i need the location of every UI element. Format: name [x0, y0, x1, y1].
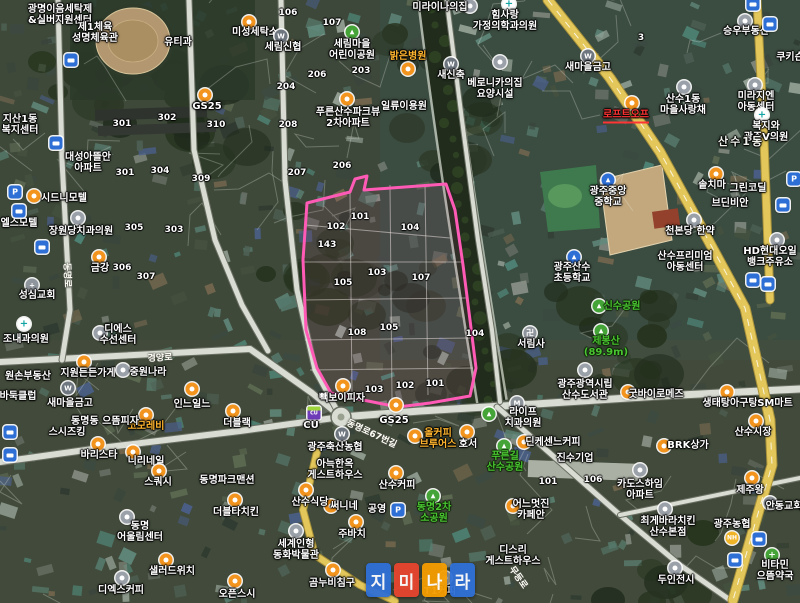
hospital-icon[interactable]: + [756, 109, 769, 122]
parking-icon[interactable]: P [788, 173, 800, 186]
store-icon[interactable] [153, 465, 166, 478]
poi-label[interactable]: 세림마을 [334, 40, 371, 50]
bus-stop-icon[interactable] [777, 199, 790, 212]
park-icon[interactable]: ▲ [483, 408, 496, 421]
bank-icon[interactable]: W [582, 50, 595, 63]
poi-label[interactable]: 복지와 [752, 122, 780, 132]
bank-icon[interactable]: W [275, 30, 288, 43]
poi-label[interactable]: 산수1동 [718, 137, 764, 147]
poi-label[interactable]: 동명2차 [417, 503, 452, 513]
poi-label[interactable]: 광주산수 [554, 263, 591, 273]
poi-label[interactable]: 동명동 으뜸피자 [71, 417, 139, 427]
poi-label[interactable]: CU [303, 421, 318, 431]
parcel-number: 104 [466, 329, 485, 339]
poi-label[interactable]: 바리스타 [81, 451, 118, 461]
place-icon[interactable] [494, 56, 507, 69]
poi-label[interactable]: 밝은병원 [390, 52, 427, 62]
parcel-number: 102 [396, 381, 415, 391]
poi-label[interactable]: 천본당 한약 [665, 227, 714, 237]
poi-label[interactable]: 브루어스 [420, 440, 457, 450]
poi-label[interactable]: 요양시설 [477, 90, 514, 100]
poi-label[interactable]: 시드니모텔 [41, 194, 87, 204]
poi-label[interactable]: 산수본점 [650, 528, 687, 538]
road-name-label: 동명로 [61, 262, 75, 287]
poi-label[interactable]: 비타민 [761, 561, 789, 571]
parcel-number: 207 [288, 168, 307, 178]
poi-label[interactable]: 새신축 [437, 71, 465, 81]
parcel-number: 102 [327, 222, 346, 232]
poi-label[interactable]: 광주중앙 [590, 187, 627, 197]
bus-stop-icon[interactable] [764, 18, 777, 31]
poi-label[interactable]: 디스리 [499, 546, 527, 556]
poi-label[interactable]: 샐러드위치 [149, 567, 195, 577]
poi-label[interactable]: 동화박물관 [273, 551, 319, 561]
place-icon[interactable] [688, 214, 701, 227]
bus-stop-icon[interactable] [762, 278, 775, 291]
poi-label[interactable]: 어린이공원 [329, 51, 375, 61]
road-name-label: 경양로 [147, 350, 172, 364]
parcel-number: 309 [192, 174, 211, 184]
poi-label[interactable]: 스쿼시 [144, 478, 172, 488]
poi-label[interactable]: GS25 [379, 416, 408, 426]
parcel-number: 3 [638, 33, 644, 43]
poi-label[interactable]: 제주왕 [736, 486, 764, 496]
watermark-tile: 라 [450, 563, 475, 597]
poi-label[interactable]: GS25 [192, 102, 221, 112]
watermark-tile: 미 [394, 563, 419, 597]
poi-label[interactable]: 미성세탁소 [232, 28, 278, 38]
poi-label[interactable]: 힘사랑 [491, 11, 519, 21]
bus-stop-icon[interactable] [747, 274, 760, 287]
parcel-number: 104 [401, 223, 420, 233]
poi-label[interactable]: 새마을금고 [47, 399, 93, 409]
temple-icon[interactable]: 卍 [524, 327, 537, 340]
place-icon[interactable] [669, 562, 682, 575]
poi-label[interactable]: 새마을금고 [565, 63, 611, 73]
store-icon[interactable] [390, 399, 403, 412]
bus-stop-icon[interactable] [4, 449, 17, 462]
poi-label[interactable]: 바둑클럽 [0, 392, 36, 402]
poi-label[interactable]: 로프트오프 [603, 111, 649, 124]
restaurant-icon[interactable] [721, 386, 734, 399]
store-icon[interactable] [300, 484, 313, 497]
poi-label[interactable]: 일류이용원 [381, 102, 427, 112]
poi-label[interactable]: 생태탕아구탕 [702, 399, 757, 409]
poi-label[interactable]: 제1체육 [78, 23, 113, 33]
poi-label[interactable]: 써니네 [330, 502, 358, 512]
place-icon[interactable] [659, 503, 672, 516]
poi-label[interactable]: 장원당치과의원 [49, 227, 113, 237]
poi-label[interactable]: 카도스하임 [617, 480, 663, 490]
place-icon[interactable] [771, 234, 784, 247]
poi-label[interactable]: 복지센터 [2, 126, 39, 136]
poi-label[interactable]: 지산1동 [3, 115, 38, 125]
bus-stop-icon[interactable] [729, 554, 742, 567]
store-icon[interactable] [28, 190, 41, 203]
poi-label[interactable]: 안동교회 [766, 502, 800, 512]
map-viewport[interactable]: 광명이음세탁제&실버지원센터지산1동복지센터제1체육성명체육관유티과미성세탁소W… [0, 0, 800, 603]
store-icon[interactable] [402, 63, 415, 76]
poi-label[interactable]: 조내과의원 [3, 335, 49, 345]
poi-label[interactable]: 디에스 [104, 325, 132, 335]
poi-label[interactable]: 더블랙 [223, 419, 251, 429]
map-label-layer: 광명이음세탁제&실버지원센터지산1동복지센터제1체육성명체육관유티과미성세탁소W… [0, 0, 800, 603]
poi-label[interactable]: 마을사랑채 [660, 106, 706, 116]
store-icon[interactable] [626, 97, 639, 110]
watermark-tile: 지 [366, 563, 391, 597]
place-icon[interactable] [116, 572, 129, 585]
parcel-number: 203 [352, 66, 371, 76]
poi-label[interactable]: 광주축산농협 [307, 443, 362, 453]
poi-label[interactable]: 그린코딜 [730, 184, 767, 194]
poi-label[interactable]: 원손부동산 [5, 372, 51, 382]
hospital-icon[interactable]: + [18, 318, 31, 331]
poi-label[interactable]: 산수시장 [735, 428, 772, 438]
poi-label[interactable]: 대성아뜰안 [65, 153, 111, 163]
parcel-number: 301 [116, 168, 135, 178]
poi-label[interactable]: 엘스모텔 [1, 219, 38, 229]
poi-label[interactable]: 카페안 [517, 511, 545, 521]
parcel-number: 101 [351, 212, 370, 222]
bank-icon[interactable]: NH [726, 532, 739, 545]
school-icon[interactable]: ▲ [602, 174, 615, 187]
store-icon[interactable] [92, 438, 105, 451]
parcel-number: 206 [333, 161, 352, 171]
poi-label[interactable]: 두인전시 [658, 576, 695, 586]
bus-stop-icon[interactable] [13, 205, 26, 218]
poi-label[interactable]: 어느멋진 [513, 500, 550, 510]
bank-icon[interactable]: W [445, 58, 458, 71]
poi-label[interactable]: 디엑스커피 [98, 586, 144, 596]
poi-label[interactable]: 굿바이로메즈 [628, 390, 683, 400]
watermark-tile: 나 [422, 563, 447, 597]
poi-label[interactable]: 서림사 [517, 340, 545, 350]
poi-label[interactable]: 브딘비안 [712, 199, 749, 209]
parcel-number: 307 [137, 272, 156, 282]
place-icon[interactable] [634, 464, 647, 477]
poi-label[interactable]: 빽보이피자 [319, 394, 365, 404]
parcel-number: 310 [207, 120, 226, 130]
parking-icon[interactable]: P [392, 504, 405, 517]
poi-label[interactable]: 쿠키슨 [776, 53, 800, 63]
poi-label[interactable]: 광주광역시립 [557, 380, 612, 390]
poi-label[interactable]: 성심교회 [19, 291, 56, 301]
parcel-number: 106 [279, 8, 298, 18]
store-icon[interactable] [186, 383, 199, 396]
parcel-number: 208 [279, 120, 298, 130]
poi-label[interactable]: 가정의학과의원 [473, 22, 537, 32]
parcel-number: 107 [323, 18, 342, 28]
restaurant-icon[interactable] [229, 494, 242, 507]
parcel-number: 305 [125, 223, 144, 233]
poi-label[interactable]: 2차아파트 [326, 119, 370, 129]
place-icon[interactable] [117, 364, 130, 377]
bank-icon[interactable]: W [336, 428, 349, 441]
poi-label[interactable]: BRK상가 [667, 441, 708, 451]
poi-label[interactable]: 아동센터 [667, 263, 704, 273]
poi-label[interactable]: 아파트 [626, 491, 654, 501]
poi-label[interactable]: 치과의원 [505, 419, 542, 429]
parcel-number: 103 [368, 268, 387, 278]
parcel-number: 301 [113, 119, 132, 129]
poi-label[interactable]: 동명파크맨션 [199, 476, 254, 486]
poi-label[interactable]: 아늑한옥 [317, 460, 354, 470]
parking-icon[interactable]: P [9, 186, 22, 199]
store-icon[interactable] [229, 575, 242, 588]
parcel-number: 101 [426, 379, 445, 389]
store-icon[interactable] [461, 426, 474, 439]
poi-label[interactable]: 초등학교 [554, 274, 591, 284]
parcel-number: 306 [113, 263, 132, 273]
parcel-number: 304 [151, 166, 170, 176]
poi-label[interactable]: 산수식당 [292, 498, 329, 508]
road-name-label: 무등로 [507, 563, 532, 591]
poi-label[interactable]: 광주농협 [714, 520, 751, 530]
bus-stop-icon[interactable] [753, 533, 766, 546]
poi-label[interactable]: 지원든든가게 [60, 369, 115, 379]
parcel-number: 105 [380, 323, 399, 333]
parcel-number: 105 [334, 278, 353, 288]
poi-label[interactable]: 산수도서관 [562, 391, 608, 401]
poi-label[interactable]: 중원나라 [130, 368, 167, 378]
store-icon[interactable] [390, 467, 403, 480]
poi-label[interactable]: 뱅크주유소 [747, 258, 793, 268]
store-icon[interactable] [350, 516, 363, 529]
parcel-number: 143 [318, 240, 337, 250]
park-icon[interactable]: ▲ [346, 26, 359, 39]
poi-label[interactable]: 푸른산수파크뷰 [316, 108, 380, 118]
poi-label[interactable]: 최게바라치킨 [640, 517, 695, 527]
bus-stop-icon[interactable] [65, 54, 78, 67]
store-icon[interactable] [327, 564, 340, 577]
poi-label[interactable]: 스시즈킹 [49, 428, 86, 438]
restaurant-icon[interactable] [710, 168, 723, 181]
restaurant-icon[interactable] [93, 251, 106, 264]
poi-label[interactable]: 세계인형 [278, 540, 315, 550]
parcel-number: 103 [365, 385, 384, 395]
store-icon[interactable] [140, 409, 153, 422]
poi-label[interactable]: 중학교 [594, 198, 622, 208]
poi-label[interactable]: 곰누비침구 [309, 579, 355, 589]
poi-label[interactable]: 산수1동 [666, 95, 701, 105]
parcel-number: 204 [277, 82, 296, 92]
bus-stop-icon[interactable] [50, 137, 63, 150]
place-icon[interactable] [72, 212, 85, 225]
poi-label[interactable]: 산수커피 [379, 481, 416, 491]
poi-label[interactable]: 솥치마 [698, 181, 726, 191]
parcel-number: 303 [165, 225, 184, 235]
poi-label[interactable]: 아파트 [74, 164, 102, 174]
place-icon[interactable] [290, 525, 303, 538]
store-icon[interactable] [341, 93, 354, 106]
hospital-icon[interactable]: + [503, 0, 516, 11]
poi-label[interactable]: 수선센터 [100, 336, 137, 346]
poi-label[interactable]: 베로니카의집 [467, 79, 522, 89]
bus-stop-icon[interactable] [4, 426, 17, 439]
poi-label[interactable]: 미라지엔 [738, 92, 775, 102]
poi-label[interactable]: 주바치 [338, 530, 366, 540]
poi-label[interactable]: 진수기업 [557, 454, 594, 464]
poi-label[interactable]: 소공원 [420, 514, 448, 524]
parcel-number: 107 [412, 273, 431, 283]
convenience-store-icon[interactable]: CU [308, 407, 321, 420]
poi-label[interactable]: 동명 [131, 522, 149, 532]
store-icon[interactable] [227, 405, 240, 418]
poi-label[interactable]: 산수프리미엄 [657, 252, 712, 262]
parcel-number: 108 [348, 328, 367, 338]
poi-label[interactable]: 푸른길 [491, 452, 519, 462]
store-icon[interactable] [160, 554, 173, 567]
poi-label[interactable]: 인느일느 [174, 400, 211, 410]
poi-label[interactable]: 라이프 [509, 408, 537, 418]
poi-label[interactable]: 세림신협 [265, 43, 302, 53]
bank-icon[interactable]: W [62, 382, 75, 395]
poi-label[interactable]: 산수공원 [487, 463, 524, 473]
poi-label[interactable]: SM마트 [757, 399, 793, 409]
restaurant-icon[interactable] [746, 472, 759, 485]
store-icon[interactable] [199, 89, 212, 102]
poi-label[interactable]: (89.9m) [584, 348, 628, 358]
place-icon[interactable] [678, 81, 691, 94]
poi-label[interactable]: 승우부동산 [723, 27, 769, 37]
poi-label[interactable]: 으뜸약국 [757, 572, 794, 582]
place-icon[interactable] [749, 79, 762, 92]
park-icon[interactable]: ▲ [427, 490, 440, 503]
poi-label[interactable]: 딘케센느커피 [525, 438, 580, 448]
poi-label[interactable]: HD현대오일 [743, 247, 796, 257]
poi-label[interactable]: 제봉산 [592, 337, 620, 347]
poi-label[interactable]: 공영 [368, 505, 386, 515]
poi-label[interactable]: 게스트하우스 [307, 471, 362, 481]
poi-label[interactable]: 미라이나의집 [412, 3, 467, 13]
poi-label[interactable]: 오픈스시 [219, 590, 256, 600]
poi-label[interactable]: 신수공원 [604, 302, 641, 312]
store-icon[interactable] [78, 356, 91, 369]
poi-label[interactable]: 어울림센터 [117, 533, 163, 543]
poi-label[interactable]: 호서 [459, 440, 477, 450]
poi-label[interactable]: 성명체육관 [72, 34, 118, 44]
poi-label[interactable]: 금강 [91, 264, 109, 274]
poi-label[interactable]: 광명이음세탁제 [28, 5, 92, 15]
bus-stop-icon[interactable] [747, 0, 760, 11]
place-icon[interactable] [579, 364, 592, 377]
poi-label[interactable]: 더블타치킨 [213, 508, 259, 518]
store-icon[interactable] [337, 380, 350, 393]
parcel-number: 302 [158, 113, 177, 123]
store-icon[interactable] [750, 415, 763, 428]
poi-label[interactable]: 올커피 [424, 429, 452, 439]
parcel-number: 206 [308, 70, 327, 80]
map-watermark: 지미나라 [366, 563, 475, 597]
parcel-number: 101 [539, 477, 558, 487]
poi-label[interactable]: 유티과 [164, 38, 192, 48]
bus-stop-icon[interactable] [36, 241, 49, 254]
parcel-number: 106 [584, 475, 603, 485]
